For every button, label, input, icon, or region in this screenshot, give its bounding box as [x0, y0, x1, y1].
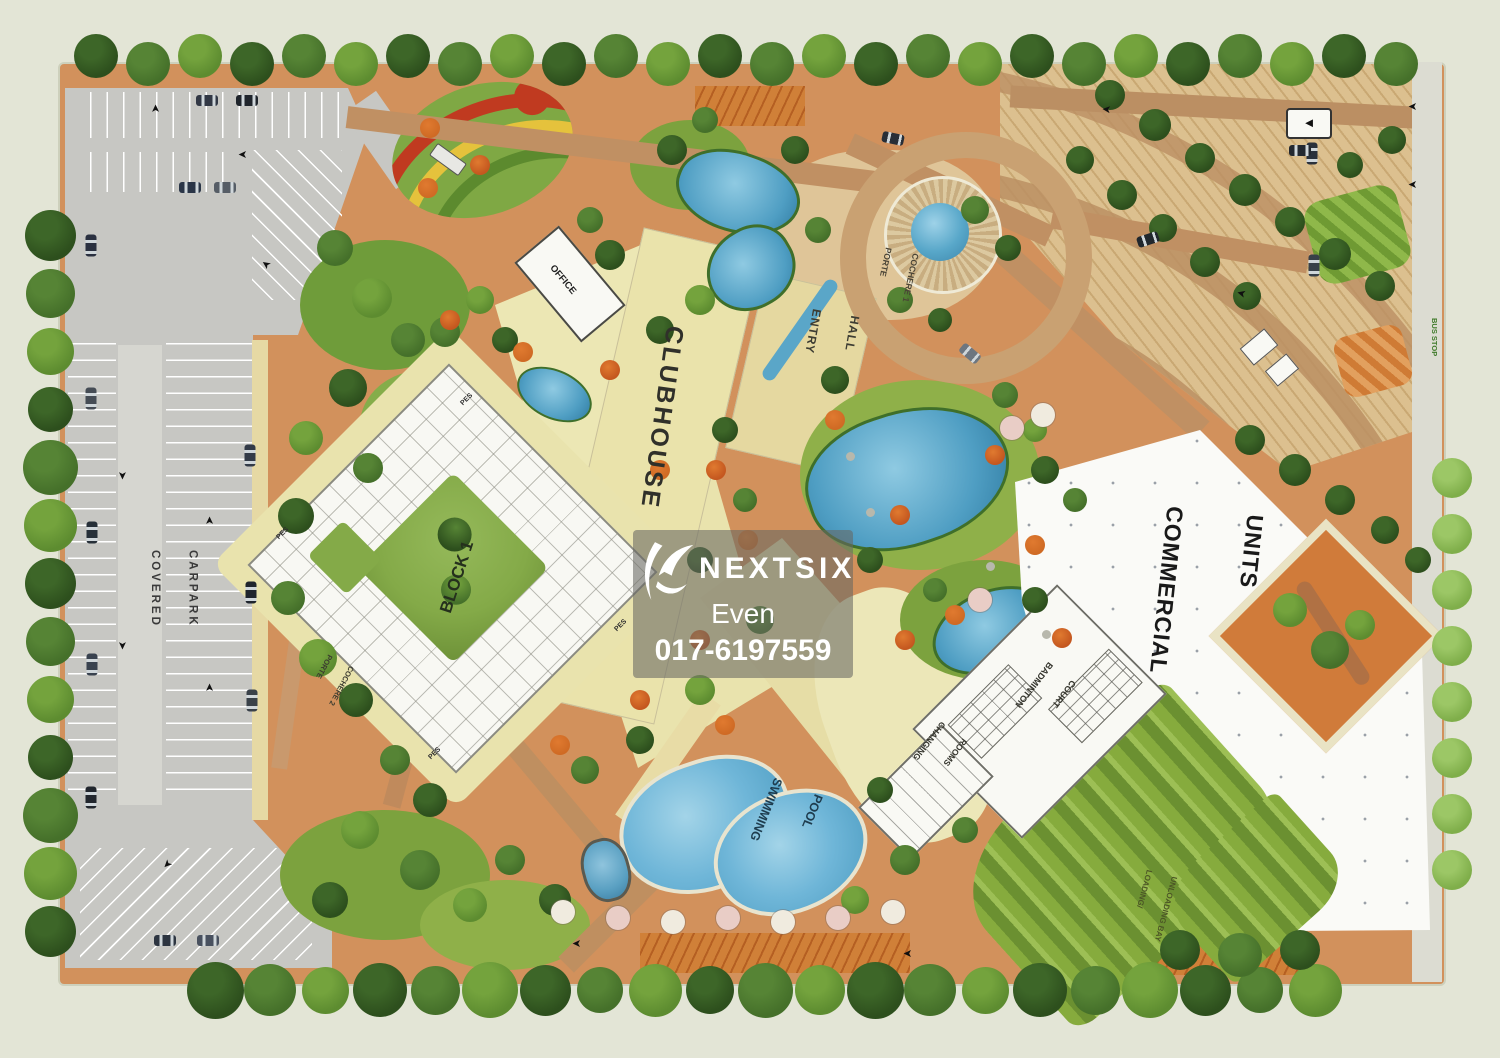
label-line: HALL	[841, 315, 862, 362]
label-line: SWIMMING	[747, 776, 784, 843]
label-line: UNITS	[1225, 513, 1267, 683]
guard-house: ◄	[1286, 108, 1332, 139]
label-line: PORTE	[306, 653, 334, 695]
watermark-agent: Even	[633, 598, 853, 630]
label-line: ROOMS	[933, 737, 969, 779]
label-line: PORTE	[874, 247, 893, 297]
label-line: UNLOADING BAY	[1152, 875, 1178, 942]
carpark-bays	[75, 152, 235, 192]
carpark-bays	[80, 848, 312, 960]
hatched-bed	[695, 86, 805, 126]
label-line: COVERED	[149, 550, 161, 628]
label-line: COCHERE 1	[901, 252, 920, 302]
covered-carpark-label: COVERED CARPARK	[124, 550, 223, 628]
watermark: NEXTSIX Even 017-6197559	[633, 530, 853, 678]
site-plan-canvas: ◄ ➤➤➤➤➤➤➤➤➤➤➤➤➤➤ COVERED CARPARK OFFICE …	[0, 0, 1500, 1058]
bus-stop-label: BUS STOP	[1430, 318, 1438, 356]
nextsix-logo-icon	[641, 538, 697, 604]
watermark-phone: 017-6197559	[633, 634, 853, 668]
fountain-water	[911, 203, 969, 261]
label-line: ENTRY	[802, 308, 823, 355]
block1-courtyard-small	[308, 520, 382, 594]
commercial-units-label: COMMERCIAL UNITS	[1096, 500, 1317, 689]
label-line: COCHERE 2	[327, 664, 355, 706]
label-line: BADMINTON	[1013, 660, 1054, 709]
carpark-bays	[68, 340, 116, 805]
label-line: LOADING/	[1127, 869, 1153, 936]
label-line: COURT	[1036, 678, 1077, 727]
carpark-bays	[75, 92, 343, 138]
hatched-strip	[640, 933, 910, 973]
label-line: CHANGING	[911, 720, 947, 762]
label-line: POOL	[787, 792, 824, 859]
label-line: COMMERCIAL	[1145, 505, 1187, 675]
watermark-brand: NEXTSIX	[699, 552, 855, 586]
label-line: CARPARK	[186, 550, 198, 628]
